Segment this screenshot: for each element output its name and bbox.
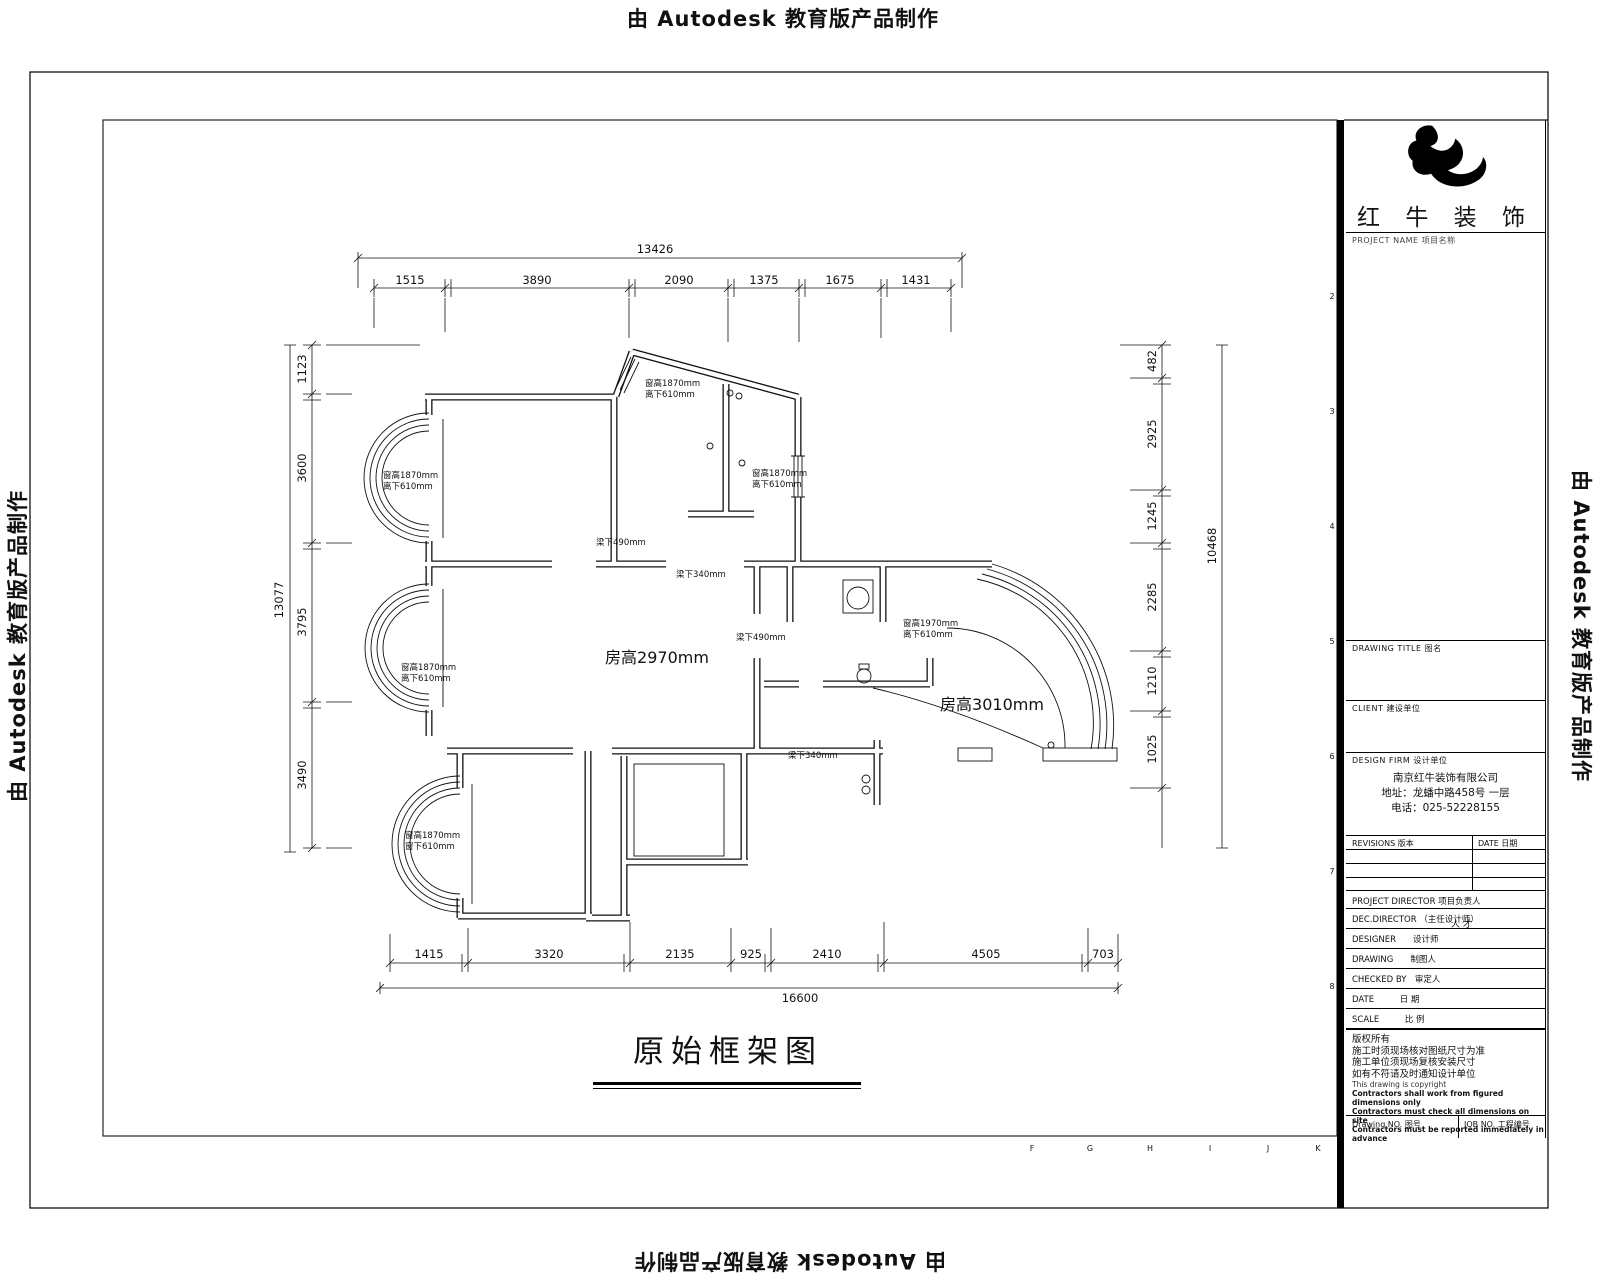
dim-label: 3795: [295, 607, 309, 636]
designer-row: DESIGNER 设计师: [1346, 928, 1545, 948]
note-en: Contractors shall work from figured dime…: [1352, 1089, 1545, 1107]
grid-number: 5: [1329, 637, 1334, 646]
project-name-label: PROJECT NAME 项目名称: [1346, 233, 1545, 246]
dim-label: 482: [1145, 350, 1159, 372]
edition-notice-right: 由 Autodesk 教育版产品制作: [1567, 396, 1597, 856]
cad-sheet: { "edition_notice": "由 Autodesk 教育版产品制作"…: [0, 0, 1600, 1280]
dimension-labels: 13426 1515 3890 2090 1375 1675 1431 1660…: [272, 242, 1219, 1005]
revision-row-line: [1346, 863, 1545, 864]
detail-lines: [443, 357, 1117, 904]
dimension-lines: [284, 252, 1228, 994]
note-cn: 施工时须现场核对图纸尺寸为准: [1352, 1046, 1545, 1058]
door-swing-arc: [947, 628, 1065, 748]
job-no-label: JOB NO. 工程编号: [1464, 1119, 1530, 1130]
revision-row-line: [1346, 849, 1545, 850]
checked-by-row: CHECKED BY 审定人: [1346, 968, 1545, 988]
dim-label: 1431: [901, 273, 930, 287]
revisions-table: REVISIONS 版本 DATE 日期: [1346, 835, 1545, 890]
dim-label: 2410: [812, 947, 841, 961]
balcony-wall-left: [958, 748, 992, 761]
dec-director-row: DEC.DIRECTOR （主任设计师） 人 才: [1346, 908, 1545, 928]
window-label: 窗高1870mm: [401, 662, 456, 673]
drain-symbol: [707, 443, 713, 449]
bay-mid-left: [365, 584, 429, 712]
dim-label: 1210: [1145, 666, 1159, 695]
dim-label: 1375: [749, 273, 778, 287]
client-section: CLIENT 建设单位: [1346, 700, 1545, 752]
grid-letter: K: [1315, 1144, 1321, 1153]
bay-window-arcs: [364, 413, 1114, 912]
inner-room-rect: [634, 764, 724, 856]
grid-letter: G: [1087, 1144, 1093, 1153]
window-label: 离下610mm: [401, 673, 451, 684]
dim-label: 4505: [971, 947, 1000, 961]
dim-label: 1675: [825, 273, 854, 287]
revision-row-line: [1346, 877, 1545, 878]
dim-label: 2285: [1145, 582, 1159, 611]
firm-name: 南京红牛装饰有限公司: [1346, 771, 1545, 786]
dim-total-bottom: 16600: [782, 991, 819, 1005]
edition-notice-top: 由 Autodesk 教育版产品制作: [553, 3, 1013, 33]
edition-notice-left: 由 Autodesk 教育版产品制作: [2, 416, 32, 876]
firm-info: 南京红牛装饰有限公司 地址：龙蟠中路458号 一层 电话：025-5222815…: [1346, 771, 1545, 816]
grid-number: 6: [1329, 752, 1334, 761]
grid-letter: F: [1030, 1144, 1035, 1153]
drawing-row: DRAWING 制图人: [1346, 948, 1545, 968]
room-height-label: 房高2970mm: [605, 648, 709, 667]
firm-phone: 电话：025-52228155: [1346, 801, 1545, 816]
window-label: 窗高1970mm: [903, 618, 958, 629]
curved-balcony-band: [977, 564, 1114, 749]
revisions-label: REVISIONS 版本: [1352, 838, 1414, 849]
toilet-tank: [859, 664, 869, 669]
date-row: DATE 日 期: [1346, 988, 1545, 1008]
grid-number: 7: [1329, 867, 1334, 876]
row-label: DESIGNER 设计师: [1352, 935, 1439, 945]
grid-letter: J: [1266, 1144, 1269, 1153]
window-label: 离下610mm: [903, 629, 953, 640]
pivot-symbol: [1048, 742, 1054, 748]
door-pivot: [862, 775, 870, 783]
balcony-wall-right: [1043, 748, 1117, 761]
design-firm-label: DESIGN FIRM 设计单位: [1346, 753, 1545, 766]
scale-row: SCALE 比 例: [1346, 1008, 1545, 1025]
edition-notice-bottom: 由 Autodesk 教育版产品制作: [560, 1247, 1020, 1277]
dim-total-left: 13077: [272, 582, 286, 619]
sink-basin: [847, 587, 869, 609]
row-label: SCALE 比 例: [1352, 1015, 1424, 1025]
dim-label: 3600: [295, 453, 309, 482]
dim-label: 1415: [414, 947, 443, 961]
row-label: DATE 日 期: [1352, 995, 1419, 1005]
brand-name: 红 牛 装 饰: [1346, 198, 1545, 232]
row-label: DRAWING 制图人: [1352, 955, 1436, 965]
dim-label: 2925: [1145, 419, 1159, 448]
revisions-date-label: DATE 日期: [1478, 838, 1517, 849]
grid-number: 2: [1329, 292, 1334, 301]
window-label: 窗高1870mm: [752, 468, 807, 479]
project-name-section: PROJECT NAME 项目名称: [1346, 232, 1545, 640]
drain-symbol: [736, 393, 742, 399]
project-director-row: PROJECT DIRECTOR 项目负责人: [1346, 890, 1545, 908]
grid-letter: H: [1147, 1144, 1153, 1153]
design-firm-section: DESIGN FIRM 设计单位 南京红牛装饰有限公司 地址：龙蟠中路458号 …: [1346, 752, 1545, 835]
grid-letter: I: [1209, 1144, 1211, 1153]
drawing-title-section: DRAWING TITLE 图名: [1346, 640, 1545, 700]
drain-symbol: [739, 460, 745, 466]
dim-label: 925: [740, 947, 762, 961]
row-label: PROJECT DIRECTOR 项目负责人: [1352, 897, 1481, 907]
row-label: CHECKED BY 审定人: [1352, 975, 1440, 985]
dim-label: 1025: [1145, 734, 1159, 763]
drawing-number-row: Drawing NO. 图号 JOB NO. 工程编号: [1346, 1115, 1545, 1138]
dim-total-top: 13426: [637, 242, 674, 256]
dim-label: 703: [1092, 947, 1114, 961]
dim-label: 3490: [295, 760, 309, 789]
grid-reference-marks: F G H I J K 2 3 4 5 6 7 8: [1030, 292, 1335, 1153]
plan-annotations: 房高2970mm 房高3010mm 窗高1870mm 离下610mm 窗高187…: [383, 378, 1044, 852]
beam-label: 梁下340mm: [788, 751, 838, 761]
dim-total-right: 10468: [1205, 528, 1219, 565]
window-label: 窗下610mm: [405, 841, 455, 852]
beam-label: 梁下490mm: [596, 538, 646, 548]
window-label: 离下610mm: [383, 481, 433, 492]
door-pivot: [862, 786, 870, 794]
grid-number: 3: [1329, 407, 1334, 416]
drawing-no-label: Drawing NO. 图号: [1352, 1119, 1421, 1130]
firm-address: 地址：龙蟠中路458号 一层: [1346, 786, 1545, 801]
dim-label: 3320: [534, 947, 563, 961]
window-label: 离下610mm: [645, 389, 695, 400]
dim-label: 1515: [395, 273, 424, 287]
drawing-title-label: DRAWING TITLE 图名: [1346, 641, 1545, 654]
note-cn: 如有不符请及时通知设计单位: [1352, 1069, 1545, 1081]
window-label: 离下610mm: [752, 479, 802, 490]
beam-label: 梁下340mm: [676, 570, 726, 580]
grid-number: 8: [1329, 982, 1334, 991]
dim-label: 3890: [522, 273, 551, 287]
bull-logo-icon: [1398, 122, 1494, 196]
note-en: This drawing is copyright: [1352, 1080, 1545, 1089]
dim-label: 1245: [1145, 501, 1159, 530]
titleblock-divider-thick: [1337, 120, 1344, 1208]
room-height-label: 房高3010mm: [940, 695, 1044, 714]
dim-label: 2090: [664, 273, 693, 287]
title-block: 红 牛 装 饰 PROJECT NAME 项目名称 DRAWING TITLE …: [1346, 120, 1546, 1138]
note-cn: 施工单位须现场复核安装尺寸: [1352, 1057, 1545, 1069]
grid-number: 4: [1329, 522, 1334, 531]
note-cn: 版权所有: [1352, 1034, 1545, 1046]
window-label: 窗高1870mm: [405, 830, 460, 841]
plan-title: 原始框架图: [595, 1026, 861, 1071]
drawing-number-divider: [1458, 1116, 1459, 1138]
client-label: CLIENT 建设单位: [1346, 701, 1545, 714]
drawing-frame: [103, 120, 1337, 1136]
plan-title-underline: [593, 1082, 861, 1089]
window-label: 窗高1870mm: [645, 378, 700, 389]
dim-label: 2135: [665, 947, 694, 961]
dim-label: 1123: [295, 354, 309, 383]
window-label: 窗高1870mm: [383, 470, 438, 481]
beam-label: 梁下490mm: [736, 633, 786, 643]
logo-zone: 红 牛 装 饰: [1346, 120, 1545, 232]
